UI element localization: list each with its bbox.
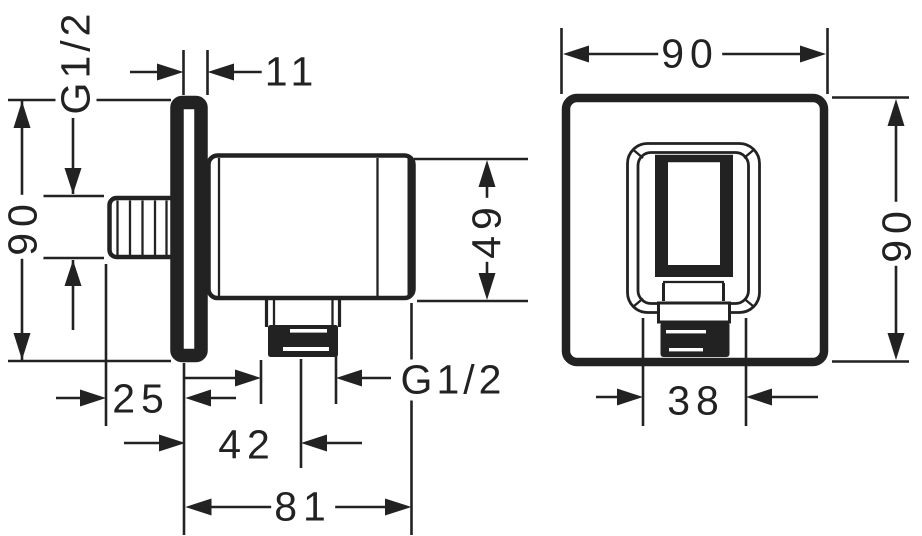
- arrow: [746, 389, 772, 406]
- outlet-thread-front: [659, 303, 730, 357]
- arrow: [301, 435, 327, 452]
- dim-label-plate-thickness: 11: [262, 52, 323, 93]
- arrow: [888, 333, 905, 360]
- arrow: [159, 435, 185, 452]
- arrow: [617, 389, 643, 406]
- dim-label-plate-height-side: 90: [3, 195, 44, 259]
- outlet-thread-side: [267, 300, 340, 357]
- arrow: [563, 46, 589, 63]
- inlet-thread-side: [110, 198, 178, 257]
- wall-plate-side: [177, 103, 201, 356]
- connector-body-side: [209, 156, 414, 299]
- drawing-canvas: [0, 0, 922, 536]
- arrow: [65, 260, 82, 286]
- dim-label-inlet-length: 25: [109, 379, 173, 420]
- front-view-drawing: [562, 28, 910, 426]
- dim-label-front-height: 90: [877, 202, 918, 266]
- arrow: [65, 168, 82, 194]
- dim-label-total-depth: 81: [271, 487, 335, 528]
- arrow: [14, 101, 31, 128]
- dim-label-g12-outlet: G1/2: [398, 360, 509, 401]
- arrow: [385, 499, 412, 516]
- dim-label-front-width: 90: [658, 34, 722, 75]
- arrow: [14, 333, 31, 360]
- arrow: [336, 370, 362, 387]
- dim-label-outlet-axis-depth: 42: [215, 425, 279, 466]
- arrow: [185, 390, 211, 407]
- arrow: [185, 499, 211, 516]
- arrow: [157, 64, 184, 81]
- dim-label-body-diameter: 49: [467, 198, 508, 262]
- shower-holder-bracket: [628, 144, 760, 313]
- dim-label-g12-inlet: G1/2: [56, 7, 97, 118]
- arrow: [888, 99, 905, 126]
- arrow: [479, 273, 496, 300]
- dim-label-holder-width: 38: [664, 381, 728, 422]
- arrow: [479, 160, 496, 187]
- technical-drawing-page: G1/2 90 11 49 25 42 81 G1/2 90 90 38: [0, 0, 922, 536]
- arrow: [235, 370, 261, 387]
- arrow: [80, 390, 106, 407]
- arrow: [800, 46, 826, 63]
- arrow: [208, 64, 235, 81]
